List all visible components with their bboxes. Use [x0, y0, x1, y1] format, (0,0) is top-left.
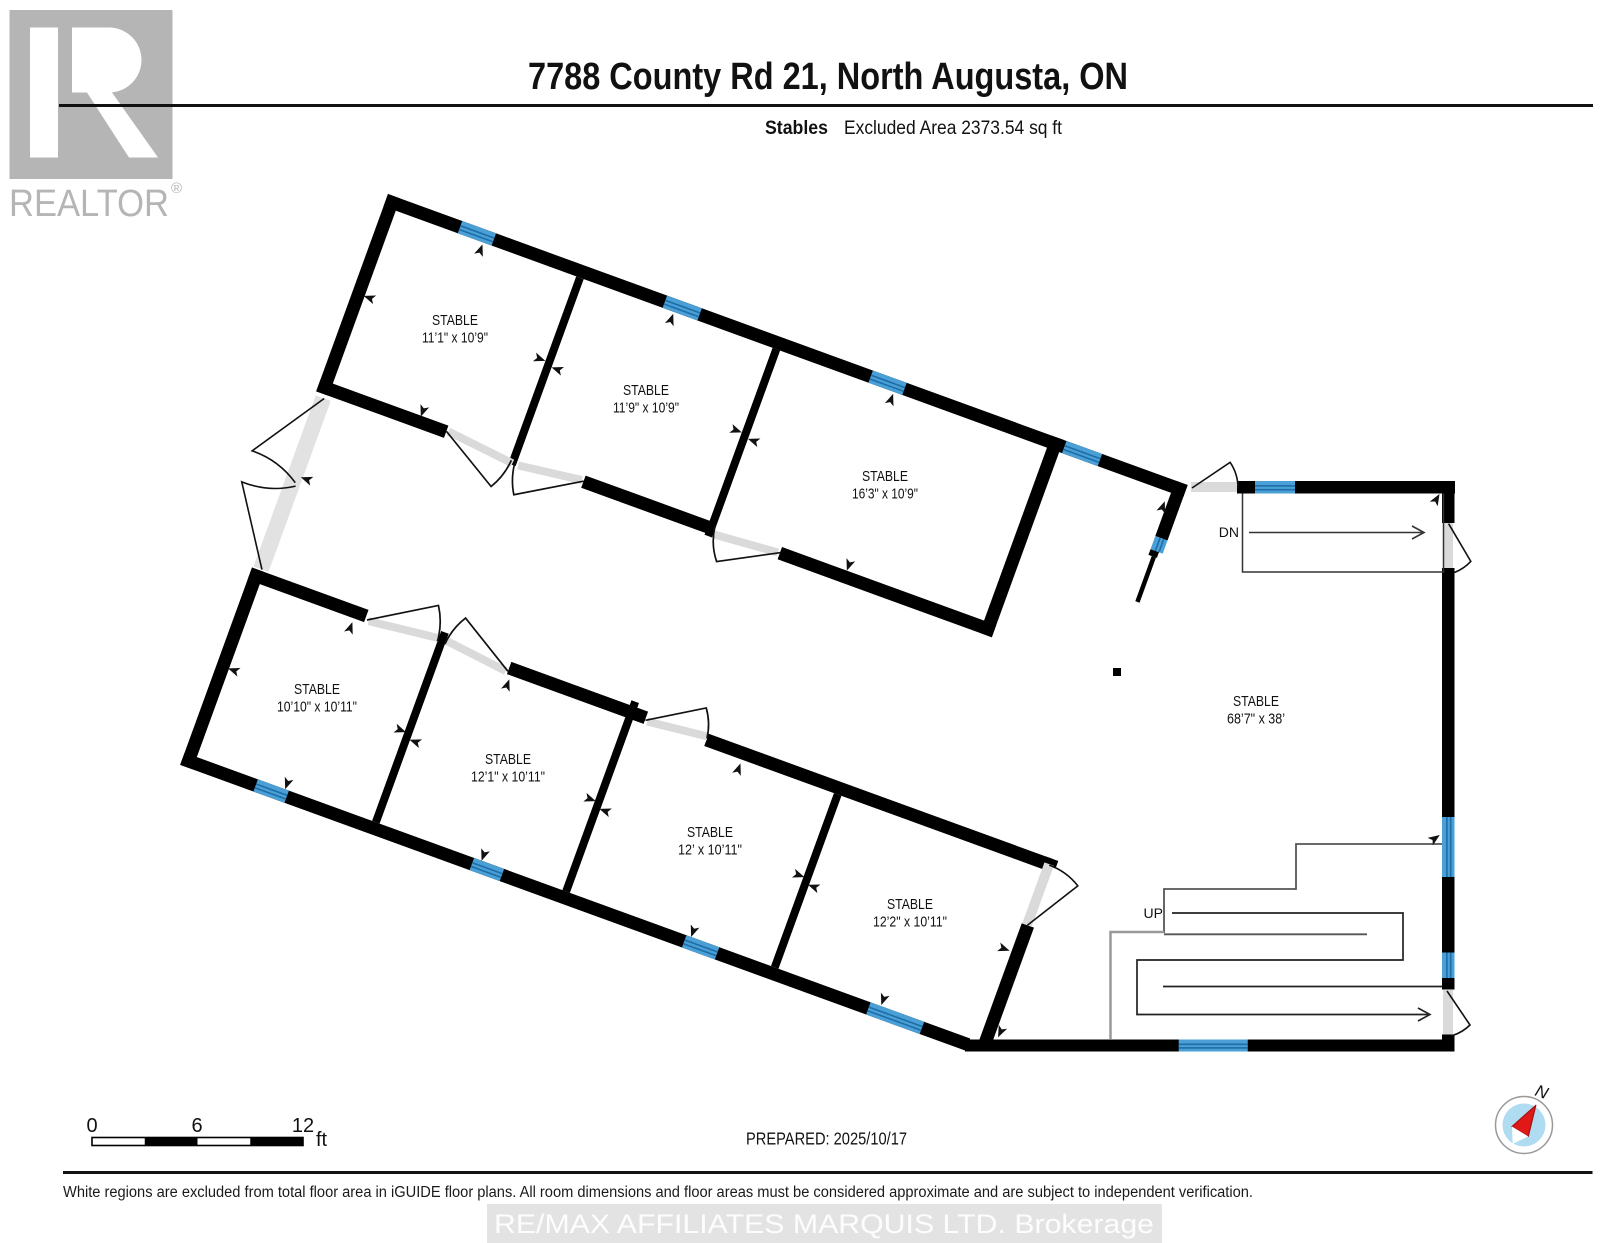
svg-text:12: 12	[292, 1115, 314, 1137]
svg-text:RE/MAX AFFILIATES MARQUIS LTD.: RE/MAX AFFILIATES MARQUIS LTD. Brokerage	[494, 1209, 1154, 1239]
svg-text:STABLE: STABLE	[432, 312, 478, 329]
svg-text:0: 0	[86, 1115, 97, 1137]
svg-text:68’7" x 38’: 68’7" x 38’	[1227, 711, 1285, 728]
svg-text:STABLE: STABLE	[862, 468, 908, 485]
svg-text:Stables: Stables	[765, 118, 828, 139]
svg-text:STABLE: STABLE	[294, 681, 340, 698]
svg-text:16’3" x 10’9": 16’3" x 10’9"	[852, 486, 918, 503]
svg-text:STABLE: STABLE	[485, 751, 531, 768]
svg-text:10’10" x 10’11": 10’10" x 10’11"	[277, 699, 357, 716]
svg-text:12’ x 10’11": 12’ x 10’11"	[678, 842, 742, 859]
svg-text:STABLE: STABLE	[1233, 693, 1279, 710]
svg-text:PREPARED: 2025/10/17: PREPARED: 2025/10/17	[746, 1129, 907, 1149]
svg-text:Excluded Area 2373.54 sq ft: Excluded Area 2373.54 sq ft	[844, 118, 1063, 139]
svg-text:UP: UP	[1144, 905, 1163, 921]
svg-text:®: ®	[171, 180, 182, 197]
svg-text:White regions are excluded fro: White regions are excluded from total fl…	[63, 1184, 1253, 1201]
svg-text:ft: ft	[316, 1129, 328, 1151]
svg-text:DN: DN	[1219, 524, 1239, 540]
svg-text:STABLE: STABLE	[887, 896, 933, 913]
svg-text:STABLE: STABLE	[623, 382, 669, 399]
svg-text:7788 County Rd 21, North Augus: 7788 County Rd 21, North Augusta, ON	[528, 56, 1128, 98]
svg-text:11’9" x 10’9": 11’9" x 10’9"	[613, 400, 679, 417]
svg-text:STABLE: STABLE	[687, 824, 733, 841]
svg-text:12’2" x 10’11": 12’2" x 10’11"	[873, 914, 947, 931]
svg-text:12’1" x 10’11": 12’1" x 10’11"	[471, 769, 545, 786]
svg-text:REALTOR: REALTOR	[9, 183, 169, 225]
svg-text:11’1" x 10’9": 11’1" x 10’9"	[422, 330, 488, 347]
svg-text:6: 6	[191, 1115, 202, 1137]
